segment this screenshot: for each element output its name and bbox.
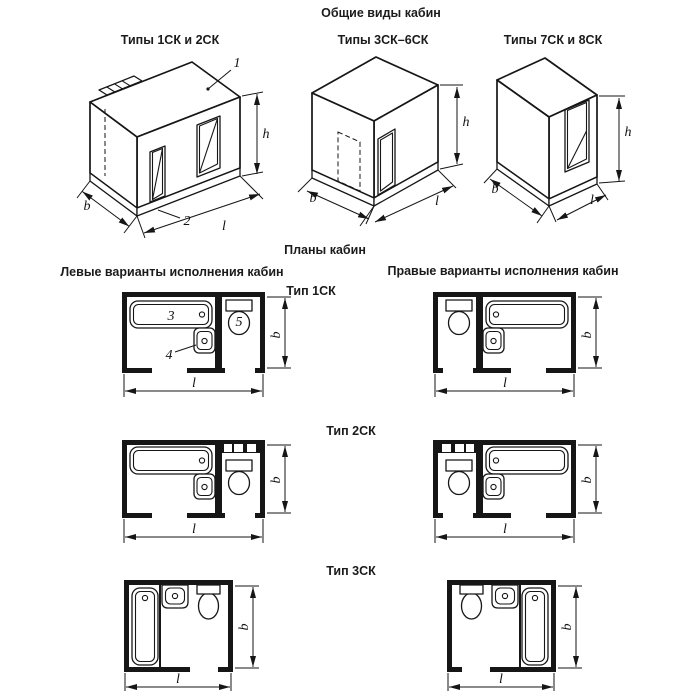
dimension-label-l: l: [590, 193, 594, 208]
view-label-3sk-6sk: Типы 3СК–6СК: [338, 33, 429, 47]
dimension-l: l: [435, 519, 574, 543]
dimension-label-h: h: [263, 127, 270, 142]
dimension-label-l: l: [176, 672, 180, 687]
plan-3sk-right: b l: [435, 576, 620, 700]
door-opening: [565, 100, 589, 172]
dimension-l: l: [125, 672, 231, 691]
dimension-label-b: b: [560, 624, 575, 631]
dimension-label-b: b: [310, 191, 317, 206]
dimension-h: h: [242, 92, 270, 176]
dimension-b: b: [578, 297, 602, 368]
dimension-label-l: l: [192, 376, 196, 391]
door-opening: [378, 129, 395, 195]
dimension-l: l: [448, 672, 554, 691]
plan-2sk-right: b l: [421, 436, 611, 548]
iso-view-types-1sk-2sk: 1 2 b l h: [60, 52, 290, 242]
dimension-b: b: [558, 586, 582, 668]
iso-view-types-3sk-6sk: b l h: [295, 52, 475, 242]
callout-washbasin: 4: [166, 345, 197, 363]
dimension-b: b: [267, 445, 291, 513]
dimension-label-b: b: [580, 332, 595, 339]
dimension-label-l: l: [192, 522, 196, 537]
view-label-1sk-2sk: Типы 1СК и 2СК: [121, 33, 219, 47]
dimension-l: l: [124, 374, 263, 397]
callout-2-label: 2: [184, 214, 191, 229]
drawing-sheet: Общие виды кабин Типы 1СК и 2СК Типы 3СК…: [0, 0, 700, 700]
door-opening: [150, 146, 165, 202]
plans-title: Планы кабин: [284, 243, 366, 257]
plan-1sk-right: b l: [421, 288, 611, 402]
dimension-b: b: [267, 297, 291, 368]
plan-1sk-left: 3 4 5 b l: [110, 288, 300, 402]
dimension-l: l: [435, 374, 574, 397]
dimension-label-b: b: [237, 624, 252, 631]
left-variants-heading: Левые варианты исполнения кабин: [60, 265, 283, 279]
dimension-label-b: b: [84, 199, 91, 214]
dimension-label-h: h: [463, 115, 470, 130]
dimension-label-l: l: [503, 376, 507, 391]
dimension-label-l: l: [435, 194, 439, 209]
plan-2sk-left: b l: [110, 436, 300, 548]
callout-bathtub: 3: [167, 309, 175, 324]
dimension-h: h: [440, 85, 470, 169]
callout-4-label: 4: [166, 348, 173, 363]
dimension-b: b: [578, 445, 602, 513]
dimension-label-l: l: [499, 672, 503, 687]
dimension-h: h: [599, 96, 632, 183]
dimension-label-h: h: [625, 125, 632, 140]
dimension-label-b: b: [269, 332, 284, 339]
dimension-label-l: l: [222, 219, 226, 234]
view-label-7sk-8sk: Типы 7СК и 8СК: [504, 33, 602, 47]
plan-type-label-2sk: Тип 2СК: [326, 424, 375, 438]
dimension-label-b: b: [492, 182, 499, 197]
door-opening: [197, 116, 220, 177]
dimension-b: b: [235, 586, 259, 668]
plan-type-label-3sk: Тип 3СК: [326, 564, 375, 578]
page-title: Общие виды кабин: [321, 6, 441, 20]
iso-view-types-7sk-8sk: b l h: [480, 52, 655, 247]
callout-1-label: 1: [234, 56, 241, 71]
dimension-label-b: b: [269, 477, 284, 484]
plan-3sk-left: b l: [112, 576, 297, 700]
dimension-label-l: l: [503, 522, 507, 537]
dimension-l: l: [124, 519, 263, 543]
dimension-label-b: b: [580, 477, 595, 484]
right-variants-heading: Правые варианты исполнения кабин: [387, 264, 618, 278]
callout-toilet: 5: [236, 315, 243, 330]
